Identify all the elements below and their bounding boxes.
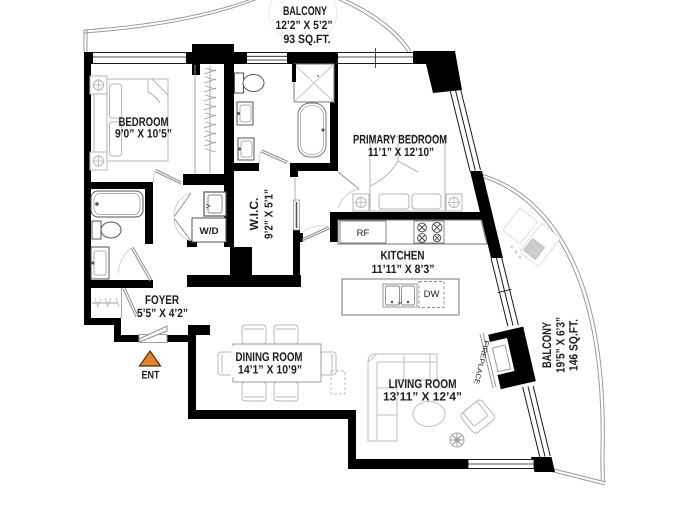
- svg-text:DW: DW: [424, 289, 440, 300]
- svg-text:BALCONY: BALCONY: [283, 4, 327, 18]
- svg-text:11’11” X 8’3”: 11’11” X 8’3”: [372, 262, 435, 276]
- svg-text:ENT: ENT: [142, 370, 160, 382]
- svg-text:12’2” X 5’2”: 12’2” X 5’2”: [276, 18, 333, 32]
- svg-text:W.I.C.: W.I.C.: [247, 198, 261, 231]
- svg-text:19’5” X 6’3”: 19’5” X 6’3”: [554, 317, 568, 373]
- svg-text:5’5” X 4’2”: 5’5” X 4’2”: [137, 306, 188, 320]
- svg-text:FOYER: FOYER: [145, 293, 179, 307]
- svg-text:13’11” X 12’4”: 13’11” X 12’4”: [383, 390, 462, 404]
- svg-text:RF: RF: [357, 228, 370, 239]
- svg-text:BALCONY: BALCONY: [540, 322, 554, 368]
- svg-text:14’1” X 10’9”: 14’1” X 10’9”: [238, 363, 302, 377]
- svg-text:KITCHEN: KITCHEN: [381, 249, 425, 263]
- svg-text:93 SQ.FT.: 93 SQ.FT.: [284, 32, 331, 46]
- svg-text:9’0” X 10’5”: 9’0” X 10’5”: [115, 127, 172, 141]
- svg-text:11’1” X 12’10”: 11’1” X 12’10”: [368, 145, 434, 159]
- svg-text:W/D: W/D: [200, 226, 219, 237]
- svg-text:9’2” X 5’1”: 9’2” X 5’1”: [264, 189, 276, 239]
- svg-text:146 SQ.FT.: 146 SQ.FT.: [567, 319, 581, 371]
